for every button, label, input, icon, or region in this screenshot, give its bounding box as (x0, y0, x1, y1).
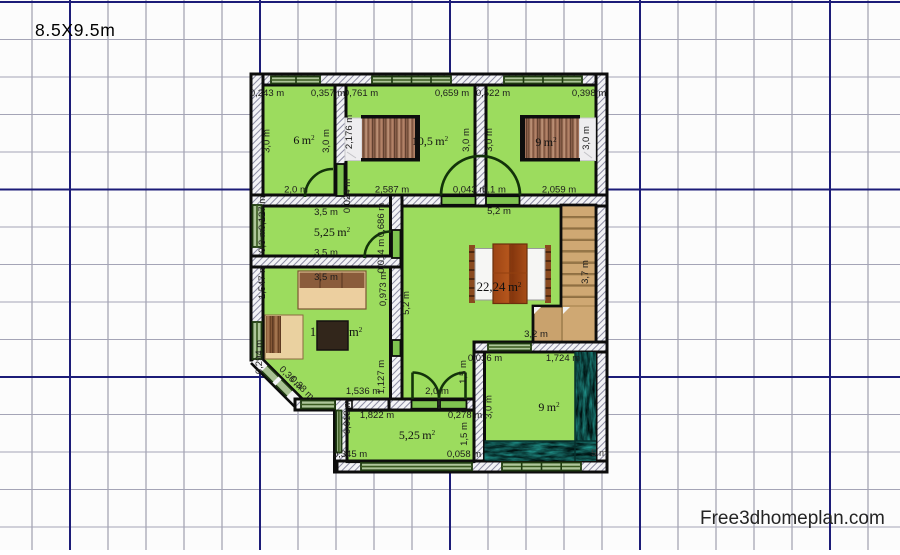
svg-text:2,176 m: 2,176 m (344, 115, 355, 149)
svg-text:1,547 m: 1,547 m (257, 265, 268, 299)
svg-text:0,127 m: 0,127 m (257, 196, 268, 230)
svg-text:8.5X9.5m: 8.5X9.5m (35, 20, 116, 40)
svg-text:0,058 m: 0,058 m (447, 449, 481, 460)
svg-text:10,5 m2: 10,5 m2 (412, 134, 449, 148)
svg-text:5 m: 5 m (591, 448, 607, 459)
svg-text:0,357 m: 0,357 m (311, 88, 345, 99)
svg-text:3,0 m: 3,0 m (484, 395, 495, 419)
svg-text:3,0 m: 3,0 m (321, 129, 332, 153)
svg-text:3,0 m: 3,0 m (581, 126, 592, 150)
svg-text:0,294 m: 0,294 m (254, 340, 265, 374)
svg-text:5,25 m2: 5,25 m2 (314, 225, 351, 239)
svg-text:1: 1 (310, 325, 316, 339)
svg-text:0,1 m: 0,1 m (482, 185, 506, 196)
svg-text:2,0 m: 2,0 m (425, 386, 449, 397)
svg-text:3,5 m: 3,5 m (314, 272, 338, 283)
svg-text:22,24 m2: 22,24 m2 (477, 280, 522, 294)
svg-text:3,7 m: 3,7 m (580, 260, 591, 284)
svg-text:0,686 m: 0,686 m (376, 203, 387, 237)
svg-text:0,659 m: 0,659 m (435, 88, 469, 99)
svg-text:0,761 m: 0,761 m (344, 88, 378, 99)
svg-text:3,0 m: 3,0 m (461, 128, 472, 152)
svg-text:0,014 m: 0,014 m (376, 239, 387, 273)
svg-text:Free3dhomeplan.com: Free3dhomeplan.com (700, 508, 885, 529)
svg-text:0,3 m: 0,3 m (257, 229, 268, 253)
svg-text:1,724 m: 1,724 m (546, 353, 580, 364)
svg-text:3,5 m: 3,5 m (314, 207, 338, 218)
svg-text:5,25 m2: 5,25 m2 (399, 428, 436, 442)
svg-text:3,5 m: 3,5 m (314, 248, 338, 259)
svg-text:3,2 m: 3,2 m (524, 329, 548, 340)
svg-text:0,973 m: 0,973 m (378, 272, 389, 306)
svg-text:3,0 m: 3,0 m (262, 129, 273, 153)
svg-text:5,2 m: 5,2 m (401, 291, 412, 315)
svg-text:2,059 m: 2,059 m (542, 185, 576, 196)
svg-text:1,822 m: 1,822 m (360, 410, 394, 421)
svg-text:2,0 m: 2,0 m (284, 185, 308, 196)
svg-text:0,345 m: 0,345 m (333, 449, 367, 460)
svg-text:0,522 m: 0,522 m (476, 88, 510, 99)
svg-text:5,2 m: 5,2 m (487, 206, 511, 217)
svg-text:0,278 m: 0,278 m (448, 410, 482, 421)
svg-text:2,587 m: 2,587 m (375, 185, 409, 196)
svg-text:1,536 m: 1,536 m (346, 386, 380, 397)
svg-text:0,013 m: 0,013 m (342, 400, 353, 434)
svg-text:1,5 m: 1,5 m (459, 422, 470, 446)
svg-text:0,024 m: 0,024 m (342, 179, 353, 213)
svg-text:0,398 m: 0,398 m (572, 88, 606, 99)
svg-text:3,0 m: 3,0 m (484, 128, 495, 152)
svg-text:0,036 m: 0,036 m (468, 353, 502, 364)
svg-text:0,243 m: 0,243 m (250, 88, 284, 99)
